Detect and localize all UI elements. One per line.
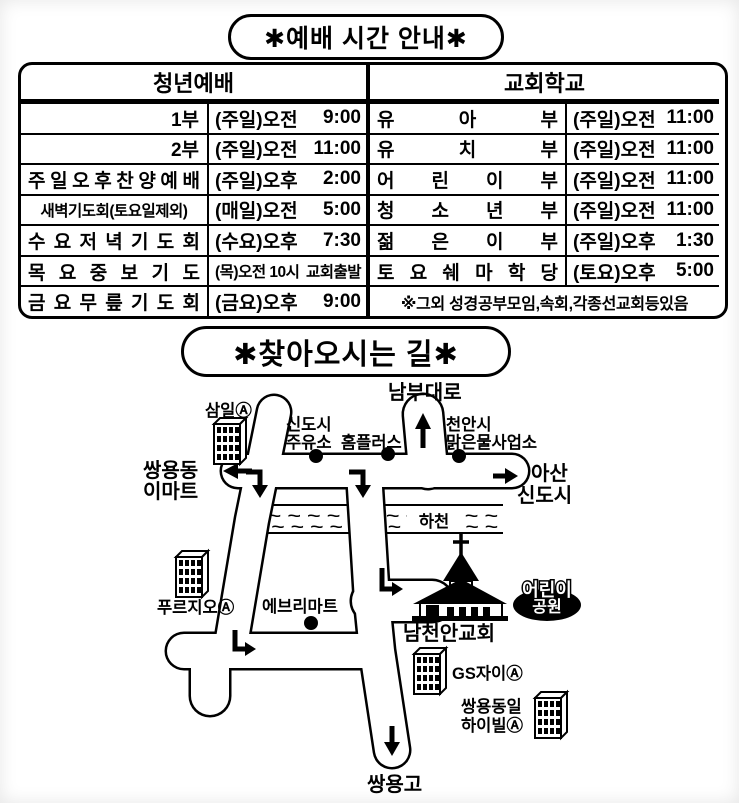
row-label: 청소년부	[370, 194, 567, 225]
row-time: (금요)오후9:00	[209, 285, 370, 316]
schedule-note: ※그외 성경공부모임,속회,각종선교회등있음	[370, 285, 719, 316]
directions-map: ~ ~ ~ ~ ~ ~ ~ ~ ~ ~ ~ ~ ~ ~ ~ ~ ~ ~ ~ ~ …	[0, 373, 739, 803]
asan-label-1: 아산	[531, 462, 568, 485]
row-label: 2부	[21, 133, 209, 164]
row-label: 토요쉐마학당	[370, 255, 567, 286]
row-time: (주일)오전9:00	[209, 102, 370, 133]
row-label: 유치부	[370, 133, 567, 164]
ssangyong-high-label: 쌍용고	[367, 773, 422, 796]
ssangyongdong-emart-label-2: 이마트	[143, 480, 198, 503]
row-label: 새벽기도회(토요일제외)	[21, 194, 209, 225]
row-time: (주일)오전11:00	[567, 102, 719, 133]
asan-label-2: 신도시	[517, 484, 572, 507]
row-label: 젊은이부	[370, 224, 567, 255]
directions-title: ✱찾아오시는 길✱	[181, 326, 511, 377]
sindosi-gas-label-2: 주유소	[286, 433, 332, 452]
row-time: (목)오전 10시교회출발	[209, 255, 370, 286]
row-time: (주일)오전11:00	[567, 194, 719, 225]
children-park-label-2: 공원	[532, 598, 561, 616]
header-youth-worship: 청년예배	[21, 65, 370, 102]
row-time: (토요)오후5:00	[567, 255, 719, 286]
church-label: 남천안교회	[403, 622, 495, 645]
gs-xi-label: GS자이Ⓐ	[452, 663, 523, 683]
cheonan-label-2: 맑은물사업소	[446, 432, 537, 452]
row-label: 주일오후찬양예배	[21, 163, 209, 194]
children-park-label-1: 어린이	[522, 580, 572, 600]
row-label: 1부	[21, 102, 209, 133]
homeplus-label: 홈플러스	[341, 432, 402, 452]
cheonan-label-1: 천안시	[446, 415, 492, 434]
prugio-label: 푸르지오Ⓐ	[157, 597, 235, 617]
flyer-page: ✱예배 시간 안내✱ ✱찾아오시는 길✱ 청년예배 교회학교 1부 (주일)오전…	[0, 0, 739, 803]
header-church-school: 교회학교	[370, 65, 719, 102]
row-time: (주일)오전11:00	[567, 163, 719, 194]
building-icon-haivill	[535, 692, 567, 738]
samil-label: 삼일Ⓐ	[205, 400, 252, 420]
row-time: (주일)오전11:00	[567, 133, 719, 164]
haivill-label-1: 쌍용동일	[461, 697, 522, 716]
building-icon-samil	[214, 418, 246, 464]
everymart-dot	[304, 616, 318, 630]
row-time: (매일)오전5:00	[209, 194, 370, 225]
everymart-label: 에브리마트	[262, 597, 338, 616]
worship-time-title: ✱예배 시간 안내✱	[228, 14, 504, 60]
church-icon	[412, 534, 508, 621]
building-icon-gs-xi	[414, 648, 446, 694]
row-label: 유아부	[370, 102, 567, 133]
worship-schedule-table: 청년예배 교회학교 1부 (주일)오전9:00 유아부 (주일)오전11:00 …	[18, 62, 728, 319]
row-label: 금요무릎기도회	[21, 285, 209, 316]
building-icon-prugio	[176, 551, 208, 597]
children-park-badge: 어린이 공원	[513, 580, 581, 621]
row-time: (주일)오후1:30	[567, 224, 719, 255]
nambu-daero-label: 남부대로	[388, 381, 462, 404]
row-time: (수요)오후7:30	[209, 224, 370, 255]
row-time: (주일)오후2:00	[209, 163, 370, 194]
row-label: 목요중보기도	[21, 255, 209, 286]
stream-label: 하천	[419, 512, 449, 531]
sindosi-gas-label-1: 신도시	[286, 415, 332, 434]
haivill-label-2: 하이빌Ⓐ	[461, 715, 524, 735]
row-time: (주일)오전11:00	[209, 133, 370, 164]
row-label: 수요저녁기도회	[21, 224, 209, 255]
ssangyongdong-emart-label-1: 쌍용동	[143, 459, 198, 482]
row-label: 어린이부	[370, 163, 567, 194]
